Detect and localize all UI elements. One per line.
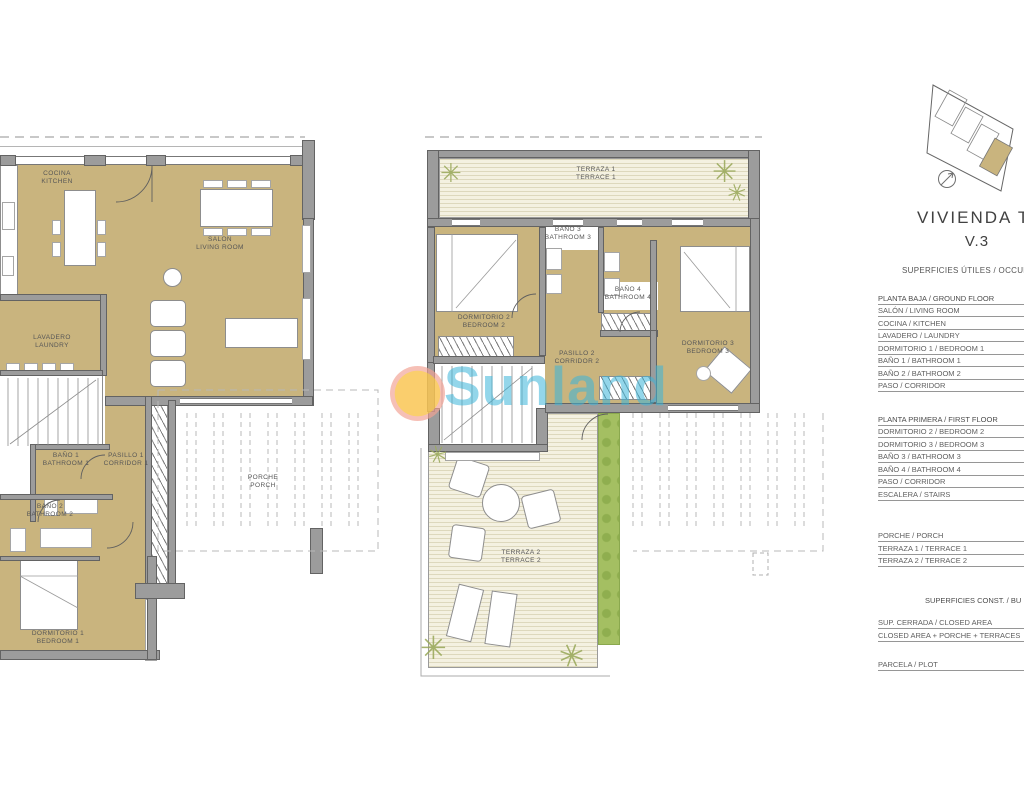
room-label-pasillo1: PASILLO 1CORRIDOR 1 — [104, 452, 149, 468]
legend-group-header: PLANTA BAJA / GROUND FLOOR — [878, 292, 1024, 305]
room-label-dormitorio2: DORMITORIO 2BEDROOM 2 — [458, 314, 510, 330]
legend-row: COCINA / KITCHEN — [878, 317, 1024, 330]
room-label-bano3: BAÑO 3BATHROOM 3 — [545, 226, 592, 242]
legend-row: CLOSED AREA + PORCHE + TERRACES — [878, 629, 1024, 642]
legend-row: SALÓN / LIVING ROOM — [878, 305, 1024, 318]
room-label-porche: PORCHEPORCH — [248, 474, 278, 490]
room-label-lavadero: LAVADEROLAUNDRY — [33, 334, 71, 350]
legend-row: DORMITORIO 1 / BEDROOM 1 — [878, 342, 1024, 355]
legend-group: PLANTA PRIMERA / FIRST FLOORDORMITORIO 2… — [878, 413, 1024, 501]
room-label-salon: SALONLIVING ROOM — [196, 236, 244, 252]
legend-group: SUPERFICIES CONST. / BUSUP. CERRADA / CL… — [878, 594, 1024, 642]
legend-row: DORMITORIO 3 / BEDROOM 3 — [878, 438, 1024, 451]
legend-row: PASO / CORRIDOR — [878, 476, 1024, 489]
room-label-bano2: BAÑO 2BATHROOM 2 — [27, 503, 74, 519]
legend-row: TERRAZA 1 / TERRACE 1 — [878, 542, 1024, 555]
floorplan-sheet: ✳ ✳ ✳ ✳ ✳ ✳ COCINAKITCHEN SALONLIVING RO… — [0, 0, 1024, 800]
room-label-bano1: BAÑO 1BATHROOM 1 — [43, 452, 90, 468]
palm-icon: ✳ — [440, 160, 462, 186]
watermark-text: Sunland — [444, 354, 668, 418]
sheet-title: VIVIENDA TIPO — [917, 208, 1024, 228]
legend-group: PLANTA BAJA / GROUND FLOORSALÓN / LIVING… — [878, 292, 1024, 392]
legend-row: LAVADERO / LAUNDRY — [878, 330, 1024, 343]
legend-row: BAÑO 4 / BATHROOM 4 — [878, 463, 1024, 476]
legend-row: BAÑO 2 / BATHROOM 2 — [878, 367, 1024, 380]
room-label-terraza1: TERRAZA 1TERRACE 1 — [576, 166, 616, 182]
sheet-subtitle: V.3 — [917, 233, 1024, 250]
room-label-bano4: BAÑO 4BATHROOM 4 — [605, 286, 652, 302]
useful-areas-header: SUPERFICIES ÚTILES / OCCUPIA — [902, 266, 1024, 275]
palm-icon: ✳ — [420, 632, 447, 664]
legend-row: TERRAZA 2 / TERRACE 2 — [878, 555, 1024, 568]
room-label-cocina: COCINAKITCHEN — [41, 170, 72, 186]
legend-group: PORCHE / PORCHTERRAZA 1 / TERRACE 1TERRA… — [878, 530, 1024, 568]
legend-row: BAÑO 3 / BATHROOM 3 — [878, 451, 1024, 464]
legend-group: PARCELA / PLOT — [878, 659, 1024, 672]
legend-row: PARCELA / PLOT — [878, 659, 1024, 672]
legend-group-header: PLANTA PRIMERA / FIRST FLOOR — [878, 413, 1024, 426]
room-label-dormitorio3: DORMITORIO 3BEDROOM 3 — [682, 340, 734, 356]
legend-row: PASO / CORRIDOR — [878, 380, 1024, 393]
legend-row: PORCHE / PORCH — [878, 530, 1024, 543]
legend-row: SUP. CERRADA / CLOSED AREA — [878, 617, 1024, 630]
legend-row: BAÑO 1 / BATHROOM 1 — [878, 355, 1024, 368]
legend-row: DORMITORIO 2 / BEDROOM 2 — [878, 426, 1024, 439]
watermark-sun-logo — [390, 366, 445, 421]
room-label-terraza2: TERRAZA 2TERRACE 2 — [501, 549, 541, 565]
areas-legend: PLANTA BAJA / GROUND FLOORSALÓN / LIVING… — [878, 292, 1024, 671]
room-label-dormitorio1: DORMITORIO 1BEDROOM 1 — [32, 630, 84, 646]
legend-row: ESCALERA / STAIRS — [878, 488, 1024, 501]
legend-group-header: SUPERFICIES CONST. / BU — [878, 594, 1024, 606]
north-arrow-icon — [939, 171, 956, 188]
